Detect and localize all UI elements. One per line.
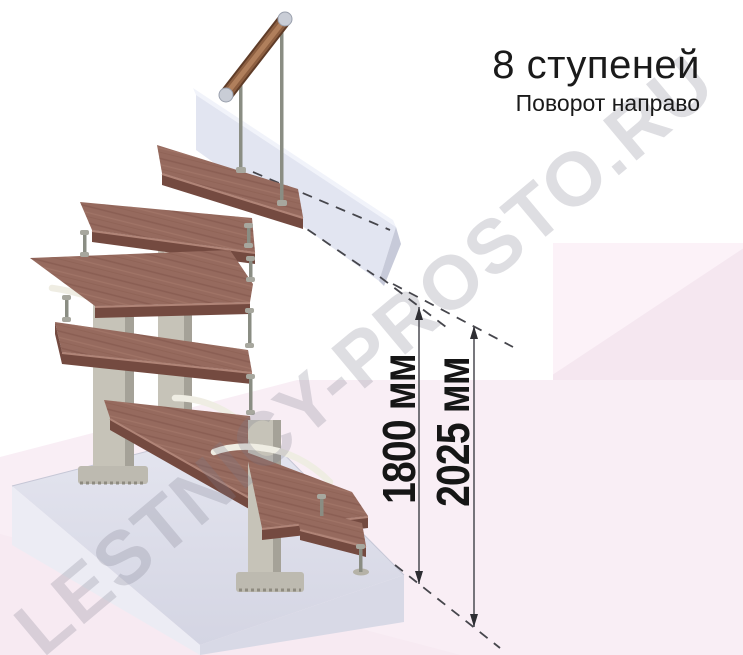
dimension-label-total: 2025 мм	[426, 357, 480, 507]
dimension-label-upper: 1800 мм	[372, 354, 426, 504]
staircase-diagram: LESTNICY-PROSTO.RU 1800 мм 2025 мм 8 сту…	[0, 0, 743, 655]
turn-direction-subtitle: Поворот направо	[492, 90, 700, 117]
header: 8 ступеней Поворот направо	[492, 44, 700, 117]
steps-count-title: 8 ступеней	[492, 44, 700, 86]
